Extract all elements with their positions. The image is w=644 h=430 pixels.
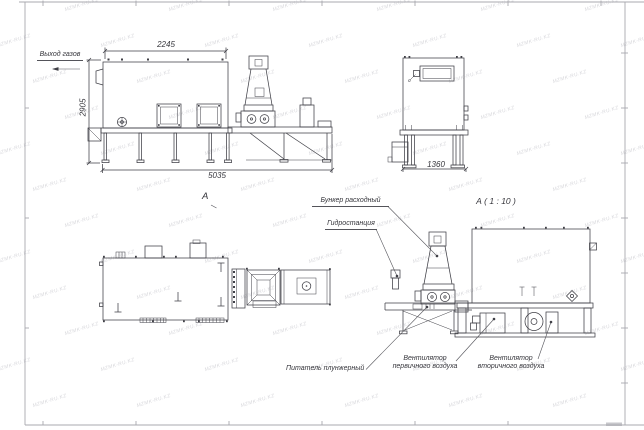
sheet-frame <box>19 1 644 427</box>
side-view <box>388 56 468 168</box>
gas-outlet-callout: Выход газов <box>37 51 83 61</box>
view-a-arrow-tick <box>211 205 217 208</box>
detail-primary-fan <box>471 313 506 333</box>
front-hatch-1 <box>157 104 181 127</box>
bunker-callout: Бункер расходный <box>312 197 389 207</box>
leader-lines <box>52 67 552 369</box>
dim-side-width: 1360 <box>419 160 453 169</box>
detail-view-a <box>385 227 597 337</box>
title-block-fragment <box>606 423 622 427</box>
front-hatch-2 <box>197 104 221 127</box>
detail-hopper-tower <box>415 232 455 304</box>
handwheel <box>117 117 126 126</box>
plan-right-body <box>281 268 331 305</box>
view-a-marker: А <box>202 193 208 201</box>
plan-flange <box>232 269 245 308</box>
detail-handwheel <box>567 291 578 302</box>
front-hopper-tower <box>236 56 275 127</box>
primary-fan-callout: Вентилятор первичного воздуха <box>387 355 463 371</box>
drawing-sheet: MZMK-RU.KZMZMK-RU.KZMZMK-RU.KZMZMK-RU.KZ… <box>0 0 644 430</box>
primary-fan-callout-line1: Вентилятор <box>387 355 463 363</box>
side-hatch <box>408 66 454 82</box>
detail-feeder <box>385 301 472 334</box>
primary-fan-callout-line2: первичного воздуха <box>387 363 463 371</box>
plan-anchor-marks <box>115 263 225 312</box>
dim-front-length: 5035 <box>201 171 233 180</box>
detail-a-title: А ( 1 : 10 ) <box>464 196 528 206</box>
secondary-fan-callout: Вентилятор вторичного воздуха <box>472 355 550 371</box>
gas-flow-arrow <box>52 67 59 71</box>
front-view <box>88 56 332 163</box>
dim-front-top-width: 2245 <box>150 40 182 49</box>
gas-outlet-stub <box>96 69 103 85</box>
dim-front-height: 2905 <box>79 90 88 126</box>
plan-view <box>100 240 331 323</box>
secondary-fan-callout-line1: Вентилятор <box>472 355 550 363</box>
plan-hopper <box>246 268 280 308</box>
hydrostation-callout: Гидростанция <box>325 220 377 230</box>
front-conveyor <box>228 98 332 162</box>
detail-secondary-fan <box>525 312 558 333</box>
secondary-fan-callout-line2: вторичного воздуха <box>472 363 550 371</box>
detail-furnace-body <box>472 227 597 303</box>
feeder-callout: Питатель плунжерный <box>286 365 366 373</box>
side-lower-box <box>388 142 408 162</box>
front-legs <box>102 133 232 163</box>
